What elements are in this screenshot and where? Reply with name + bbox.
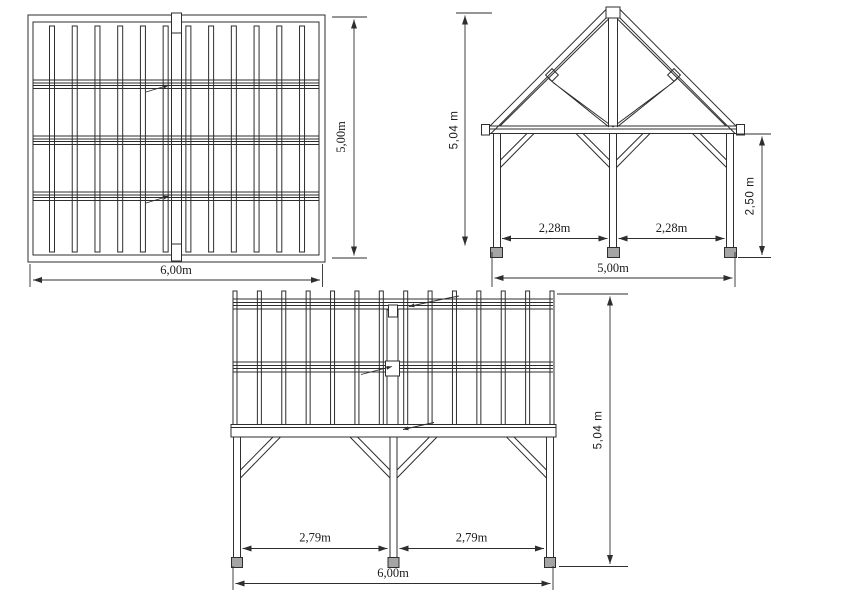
gable-height-label: 5,04 m [449,111,461,150]
side-view [231,291,556,568]
side-purlin-king-post-joint [386,361,400,376]
side-left-post [234,437,241,558]
plan-depth-label: 5,00m [334,121,348,153]
timber-frame-technical-drawing: 6,00m 5,00m 5,04 m 2,50 m 2,28m 2,28m 5 [0,0,842,596]
drawing-canvas: 6,00m 5,00m 5,04 m 2,50 m 2,28m 2,28m 5 [0,0,842,596]
gable-right-beam-cap [737,125,745,136]
gable-center-post [610,134,617,248]
gable-apex-block [606,7,620,18]
side-height-label: 5,04 m [593,411,605,450]
plan-view [28,13,325,262]
side-right-footing [545,558,556,568]
side-extension-lines [233,294,628,590]
side-width-label: 6,00m [377,566,409,580]
gable-view [482,7,745,258]
gable-tie-beam [484,126,742,134]
side-eave-beam [231,425,556,438]
gable-left-beam-cap [482,125,490,136]
gable-width-label: 5,00m [597,261,629,275]
side-dimensions: 2,79m 2,79m 6,00m 5,04 m [233,294,628,590]
plan-dimensions: 6,00m 5,00m [30,17,367,287]
gable-post-height-label: 2,50 m [745,177,757,216]
gable-king-post [609,14,618,126]
side-king-post-top-joint [389,305,398,317]
gable-center-footing [608,248,620,258]
plan-extension-lines [30,17,367,287]
side-leader-top [409,296,459,307]
side-right-bay-label: 2,79m [456,531,488,545]
plan-ridge-top-tab [172,13,182,33]
gable-left-post [494,134,501,248]
gable-left-bay-label: 2,28m [539,221,571,235]
side-left-bay-label: 2,79m [299,531,331,545]
plan-ridge-bottom-tab [172,244,182,261]
side-right-post [547,437,554,558]
plan-width-label: 6,00m [160,263,192,277]
side-center-post [390,437,397,558]
gable-right-post [727,134,734,248]
gable-right-bay-label: 2,28m [656,221,688,235]
